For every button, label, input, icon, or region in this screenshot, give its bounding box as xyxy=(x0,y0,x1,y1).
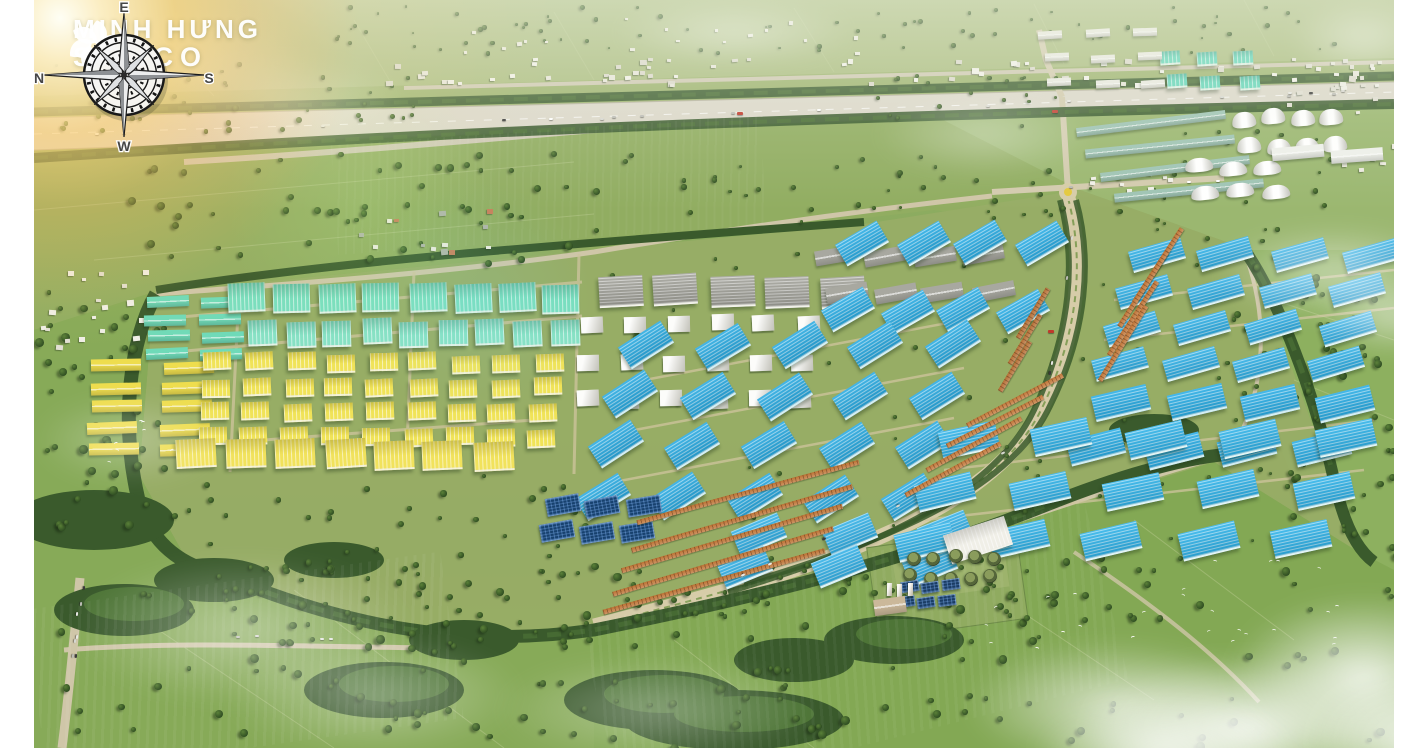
aerial-rendering-canvas: MINH HƯNG SIKICO xyxy=(0,0,1428,748)
cloud xyxy=(874,95,1094,175)
bird xyxy=(1230,640,1235,644)
cloud xyxy=(34,395,224,485)
bird xyxy=(1077,624,1082,628)
bird xyxy=(989,642,993,645)
bird xyxy=(1210,609,1215,613)
bird xyxy=(1073,593,1077,596)
compass-letter-north: N xyxy=(34,70,44,86)
cloud xyxy=(614,0,854,65)
bird xyxy=(1131,635,1136,639)
compass-letter-west: W xyxy=(117,138,131,154)
bird xyxy=(1182,587,1187,591)
compass-rose: E S W N xyxy=(34,0,214,160)
bird xyxy=(1213,560,1217,564)
compass-letter-south: S xyxy=(204,70,213,86)
bird xyxy=(1276,560,1280,563)
compass-star xyxy=(44,13,204,137)
bird xyxy=(1061,631,1065,634)
bird xyxy=(1207,630,1212,634)
bird xyxy=(1237,628,1242,632)
white-margin-right xyxy=(1394,0,1428,748)
bird xyxy=(994,606,999,610)
bird xyxy=(1046,596,1051,600)
cloud xyxy=(224,635,524,748)
bird xyxy=(1180,593,1185,598)
compass-letter-east: E xyxy=(119,0,128,15)
bird xyxy=(1142,611,1147,615)
white-margin-left xyxy=(0,0,34,748)
bird xyxy=(983,623,988,627)
bird xyxy=(1317,567,1322,571)
bird xyxy=(1269,559,1274,563)
industrial-park-aerial-photo: MINH HƯNG SIKICO xyxy=(34,0,1394,748)
